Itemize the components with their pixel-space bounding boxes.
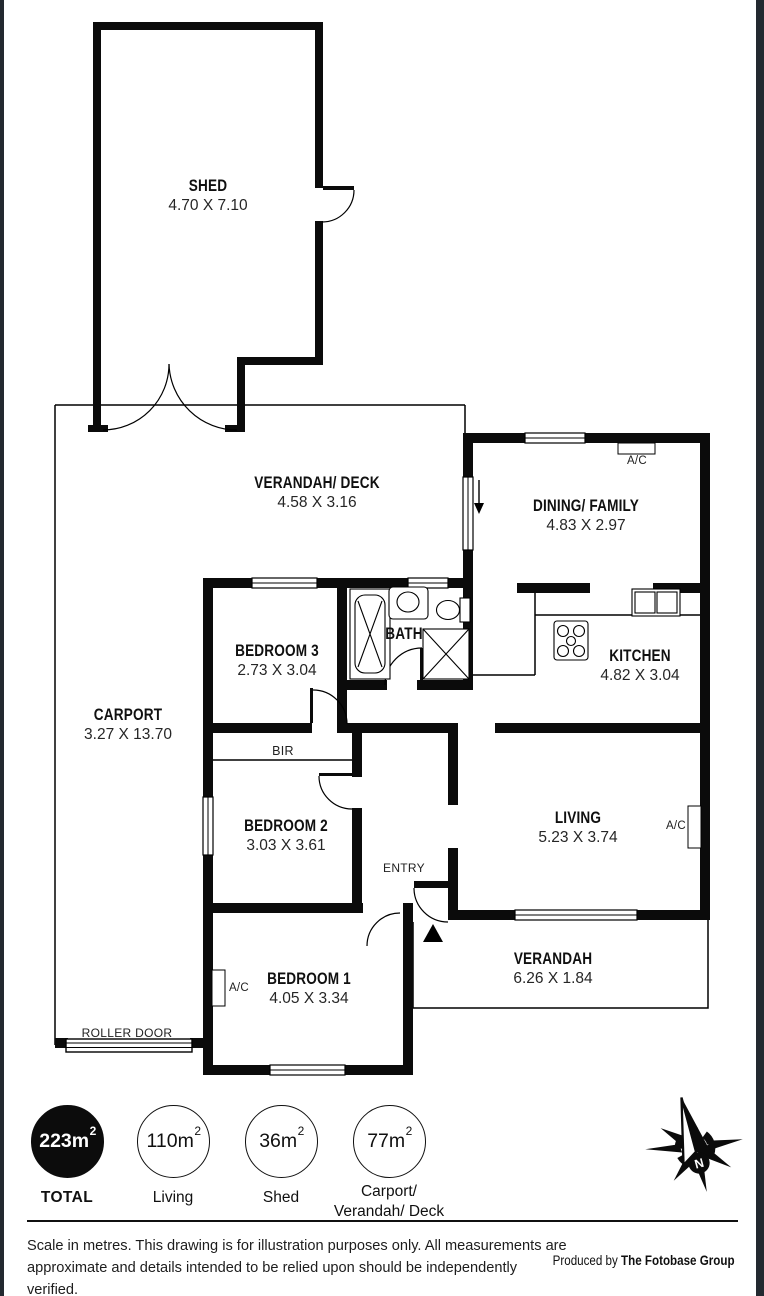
room-label-carport: CARPORT 3.27 X 13.70 [84,705,172,744]
room-name: DINING/ FAMILY [533,496,639,516]
ac-label-bedroom1: A/C [229,982,249,994]
room-name: BEDROOM 2 [244,816,328,836]
living-area-badge: 110m2 [137,1105,210,1178]
room-name: VERANDAH/ DECK [254,473,379,493]
compass-icon: N [636,1088,754,1208]
ac-label-dining: A/C [627,455,647,467]
entry-label: ENTRY [383,861,425,875]
living-area-label: Living [153,1188,194,1208]
toilet-icon [460,598,470,622]
room-label-shed: SHED 4.70 X 7.10 [168,176,247,215]
entry-door-arc [414,888,448,922]
shed-double-door-left-arc [103,364,169,430]
carport-area-badge: 77m2 [353,1105,426,1178]
left-edge-strip [0,0,4,1296]
total-area-badge: 223m2 [31,1105,104,1178]
badge-value: 110m [146,1130,193,1152]
room-dims: 4.83 X 2.97 [520,517,653,535]
room-label-bedroom1: BEDROOM 1 4.05 X 3.34 [257,969,362,1008]
room-name: LIVING [546,808,609,828]
room-dims: 5.23 X 3.74 [538,829,617,847]
room-name: CARPORT [93,705,163,725]
room-label-bedroom3: BEDROOM 3 2.73 X 3.04 [225,641,330,680]
ac-unit-living [688,806,701,848]
bedroom2-door-arc [319,776,352,809]
shed-door-arc [322,190,354,222]
room-dims: 3.03 X 3.61 [234,837,339,855]
ac-unit-dining [618,443,655,454]
room-dims: 4.82 X 3.04 [600,667,679,685]
disclaimer-text: Scale in metres. This drawing is for ill… [27,1235,572,1296]
room-label-kitchen: KITCHEN 4.82 X 3.04 [600,646,679,685]
room-dims: 4.05 X 3.34 [257,990,362,1008]
bir-label: BIR [272,744,294,758]
room-name: BEDROOM 1 [267,969,351,989]
total-area-label: TOTAL [41,1188,93,1208]
shed-area-badge: 36m2 [245,1105,318,1178]
room-name: VERANDAH [514,949,592,969]
room-dims: 6.26 X 1.84 [504,970,602,988]
floorplan-drawing [0,0,764,1080]
floorplan-page: SHED 4.70 X 7.10 VERANDAH/ DECK 4.58 X 3… [0,0,764,1296]
badge-value: 223m [39,1130,89,1152]
room-label-verandah: VERANDAH 6.26 X 1.84 [504,949,602,988]
room-label-dining-family: DINING/ FAMILY 4.83 X 2.97 [520,496,653,535]
badge-value: 77m [367,1130,405,1152]
room-name: SHED [176,176,239,196]
room-dims: 3.27 X 13.70 [84,726,172,744]
footer-divider [27,1220,738,1222]
bedroom1-door-arc [367,913,400,946]
room-label-bedroom2: BEDROOM 2 3.03 X 3.61 [234,816,339,855]
entry-marker-icon [423,924,443,942]
room-dims: 2.73 X 3.04 [225,662,330,680]
ac-label-living: A/C [666,820,686,832]
room-label-bath: BATH [381,624,428,644]
roller-door-symbol [66,1039,192,1052]
carport-area-label: Carport/ Verandah/ Deck [334,1182,444,1222]
shed-double-door-right-arc [169,364,237,430]
roller-door-label: ROLLER DOOR [82,1026,173,1040]
room-label-verandah-deck: VERANDAH/ DECK 4.58 X 3.16 [239,473,396,512]
room-dims: 4.58 X 3.16 [239,494,396,512]
right-edge-strip [756,0,764,1296]
room-name: BATH [385,624,422,644]
room-label-living: LIVING 5.23 X 3.74 [538,808,617,847]
room-name: KITCHEN [608,646,671,666]
room-name: BEDROOM 3 [235,641,319,661]
room-dims: 4.70 X 7.10 [168,197,247,215]
shed-area-label: Shed [263,1188,299,1208]
ac-unit-bedroom1 [212,970,225,1006]
badge-value: 36m [259,1130,297,1152]
producer-credit: Produced by The Fotobase Group [553,1253,735,1268]
